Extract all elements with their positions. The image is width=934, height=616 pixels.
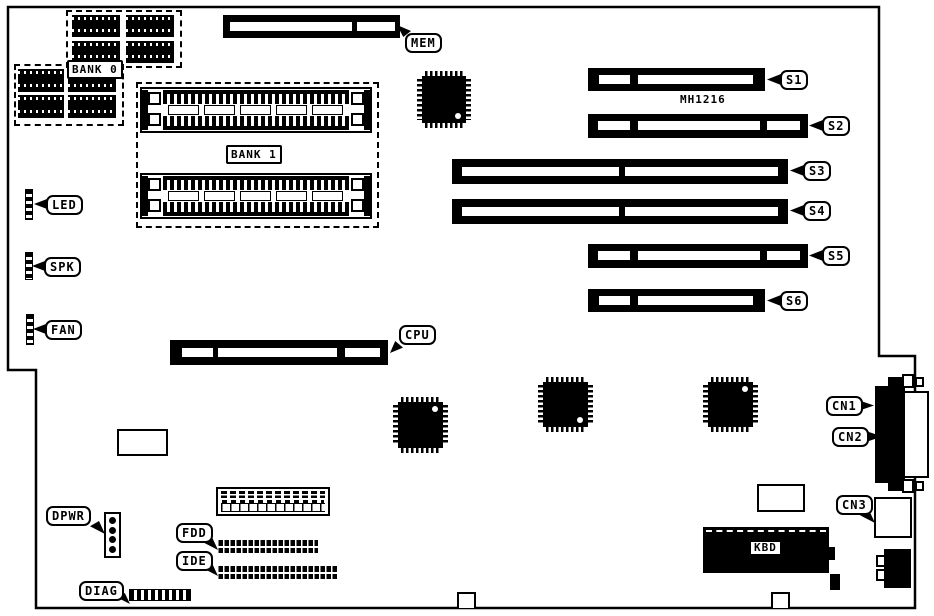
oscillator [757, 484, 805, 512]
slot-window [767, 251, 800, 260]
cn1-callout: CN1 [826, 396, 863, 416]
connector-bracket [915, 481, 924, 491]
qfp-chip [417, 71, 471, 128]
spk-header [25, 252, 33, 280]
simm-clip [148, 199, 161, 212]
connector-pin-block [876, 569, 886, 581]
slot-window [218, 348, 337, 357]
simm-window [312, 191, 343, 201]
bank0-dip-chip [18, 69, 64, 92]
isa-slot-s2 [588, 114, 808, 138]
pin-row [163, 202, 349, 216]
slot-window [638, 251, 760, 260]
slot-window [625, 167, 778, 176]
s1-callout: S1 [780, 70, 808, 90]
s3-callout: S3 [803, 161, 831, 181]
smd-component [830, 574, 840, 590]
simm-socket [140, 87, 372, 133]
isa-slot-s6 [588, 289, 765, 312]
connector-bracket [915, 377, 924, 387]
bank0-dip-chip [72, 15, 120, 37]
chip-notch-line [706, 530, 826, 532]
simm-window [276, 191, 307, 201]
simm-latch [364, 90, 370, 130]
simm-clip [148, 92, 161, 105]
pin1-dot [432, 406, 438, 412]
mem-slot [223, 15, 400, 38]
cpu-slot [170, 340, 388, 365]
pin1-dot [577, 417, 583, 423]
qfp-chip [393, 397, 448, 453]
cn3-connector [874, 497, 912, 538]
isa-slot-s1 [588, 68, 765, 91]
simm-clip [148, 178, 161, 191]
dpwr-callout: DPWR [46, 506, 91, 526]
led-header [25, 189, 33, 220]
motherboard-diagram: MEM BANK 0 BANK 1 [0, 0, 934, 616]
mem-callout: MEM [405, 33, 442, 53]
simm-window [276, 105, 307, 115]
pin-dot [109, 527, 116, 534]
simm-window [312, 105, 343, 115]
simm-socket [140, 173, 372, 219]
slot-window [598, 121, 630, 130]
slot-window [599, 75, 630, 84]
qfp-chip [703, 377, 758, 432]
spk-callout: SPK [44, 257, 81, 277]
simm-clip [351, 113, 364, 126]
simm-latch [364, 176, 370, 216]
kbd-chip: KBD [703, 527, 829, 573]
simm-clip [351, 92, 364, 105]
slot-window [462, 207, 619, 216]
power-connector [216, 487, 330, 516]
cn3-callout: CN3 [836, 495, 873, 515]
pin1-dot [742, 386, 748, 392]
oscillator [117, 429, 168, 456]
s4-callout: S4 [803, 201, 831, 221]
fan-callout: FAN [45, 320, 82, 340]
slot-window [625, 207, 778, 216]
led-callout: LED [46, 195, 83, 215]
slot-window [462, 167, 619, 176]
pin-dot [109, 517, 116, 524]
simm-window [204, 105, 235, 115]
pin1-dot [455, 113, 461, 119]
slot-window [345, 348, 380, 357]
ide-callout: IDE [176, 551, 213, 571]
fan-header [26, 314, 34, 345]
din-connector [884, 549, 911, 588]
bank0-dip-chip [126, 41, 174, 63]
simm-clip [351, 199, 364, 212]
slot-window [182, 348, 213, 357]
bank1-label: BANK 1 [226, 145, 282, 164]
fdd-header [217, 540, 318, 553]
cn2-callout: CN2 [832, 427, 869, 447]
ide-header [217, 566, 337, 579]
cpu-callout: CPU [399, 325, 436, 345]
slot-window [767, 121, 800, 130]
simm-window [168, 191, 199, 201]
slot-window [599, 296, 630, 305]
pin-row [163, 176, 349, 190]
fdd-callout: FDD [176, 523, 213, 543]
dpwr-connector [104, 512, 121, 558]
connector-bracket [888, 482, 903, 491]
db-connector-body [875, 386, 905, 483]
slot-window [598, 251, 630, 260]
chip-bump [829, 547, 835, 560]
slot-window [638, 296, 753, 305]
pin-row [163, 90, 349, 104]
slot-window [230, 22, 352, 31]
pin-dot [109, 536, 116, 543]
bank0-label: BANK 0 [67, 60, 123, 79]
connector-bracket [902, 479, 914, 493]
slot-window [638, 121, 760, 130]
s6-callout: S6 [780, 291, 808, 311]
pin-row [221, 503, 325, 512]
connector-pin-block [876, 555, 886, 567]
simm-window [240, 105, 271, 115]
diag-callout: DIAG [79, 581, 124, 601]
db-connector-shell [903, 391, 929, 478]
s5-callout: S5 [822, 246, 850, 266]
bank0-dip-chip [68, 95, 116, 118]
s2-callout: S2 [822, 116, 850, 136]
pin-row [163, 116, 349, 130]
isa-slot-s5 [588, 244, 808, 268]
simm-clip [351, 178, 364, 191]
pin-dot [109, 546, 116, 553]
kbd-label: KBD [749, 540, 782, 556]
simm-window [168, 105, 199, 115]
simm-window [240, 191, 271, 201]
slot-window [357, 22, 395, 31]
isa-slot-s3 [452, 159, 788, 184]
board-mount-tab [771, 592, 790, 608]
simm-window [204, 191, 235, 201]
board-mount-tab [457, 592, 476, 608]
qfp-chip [538, 377, 593, 432]
bank0-dip-chip [126, 15, 174, 37]
slot-window [638, 75, 753, 84]
bank0-dip-chip [18, 95, 64, 118]
diag-header [129, 589, 191, 601]
isa-slot-s4 [452, 199, 788, 224]
pin-row [221, 491, 325, 498]
chip-marking-text: MH1216 [680, 93, 726, 106]
simm-clip [148, 113, 161, 126]
